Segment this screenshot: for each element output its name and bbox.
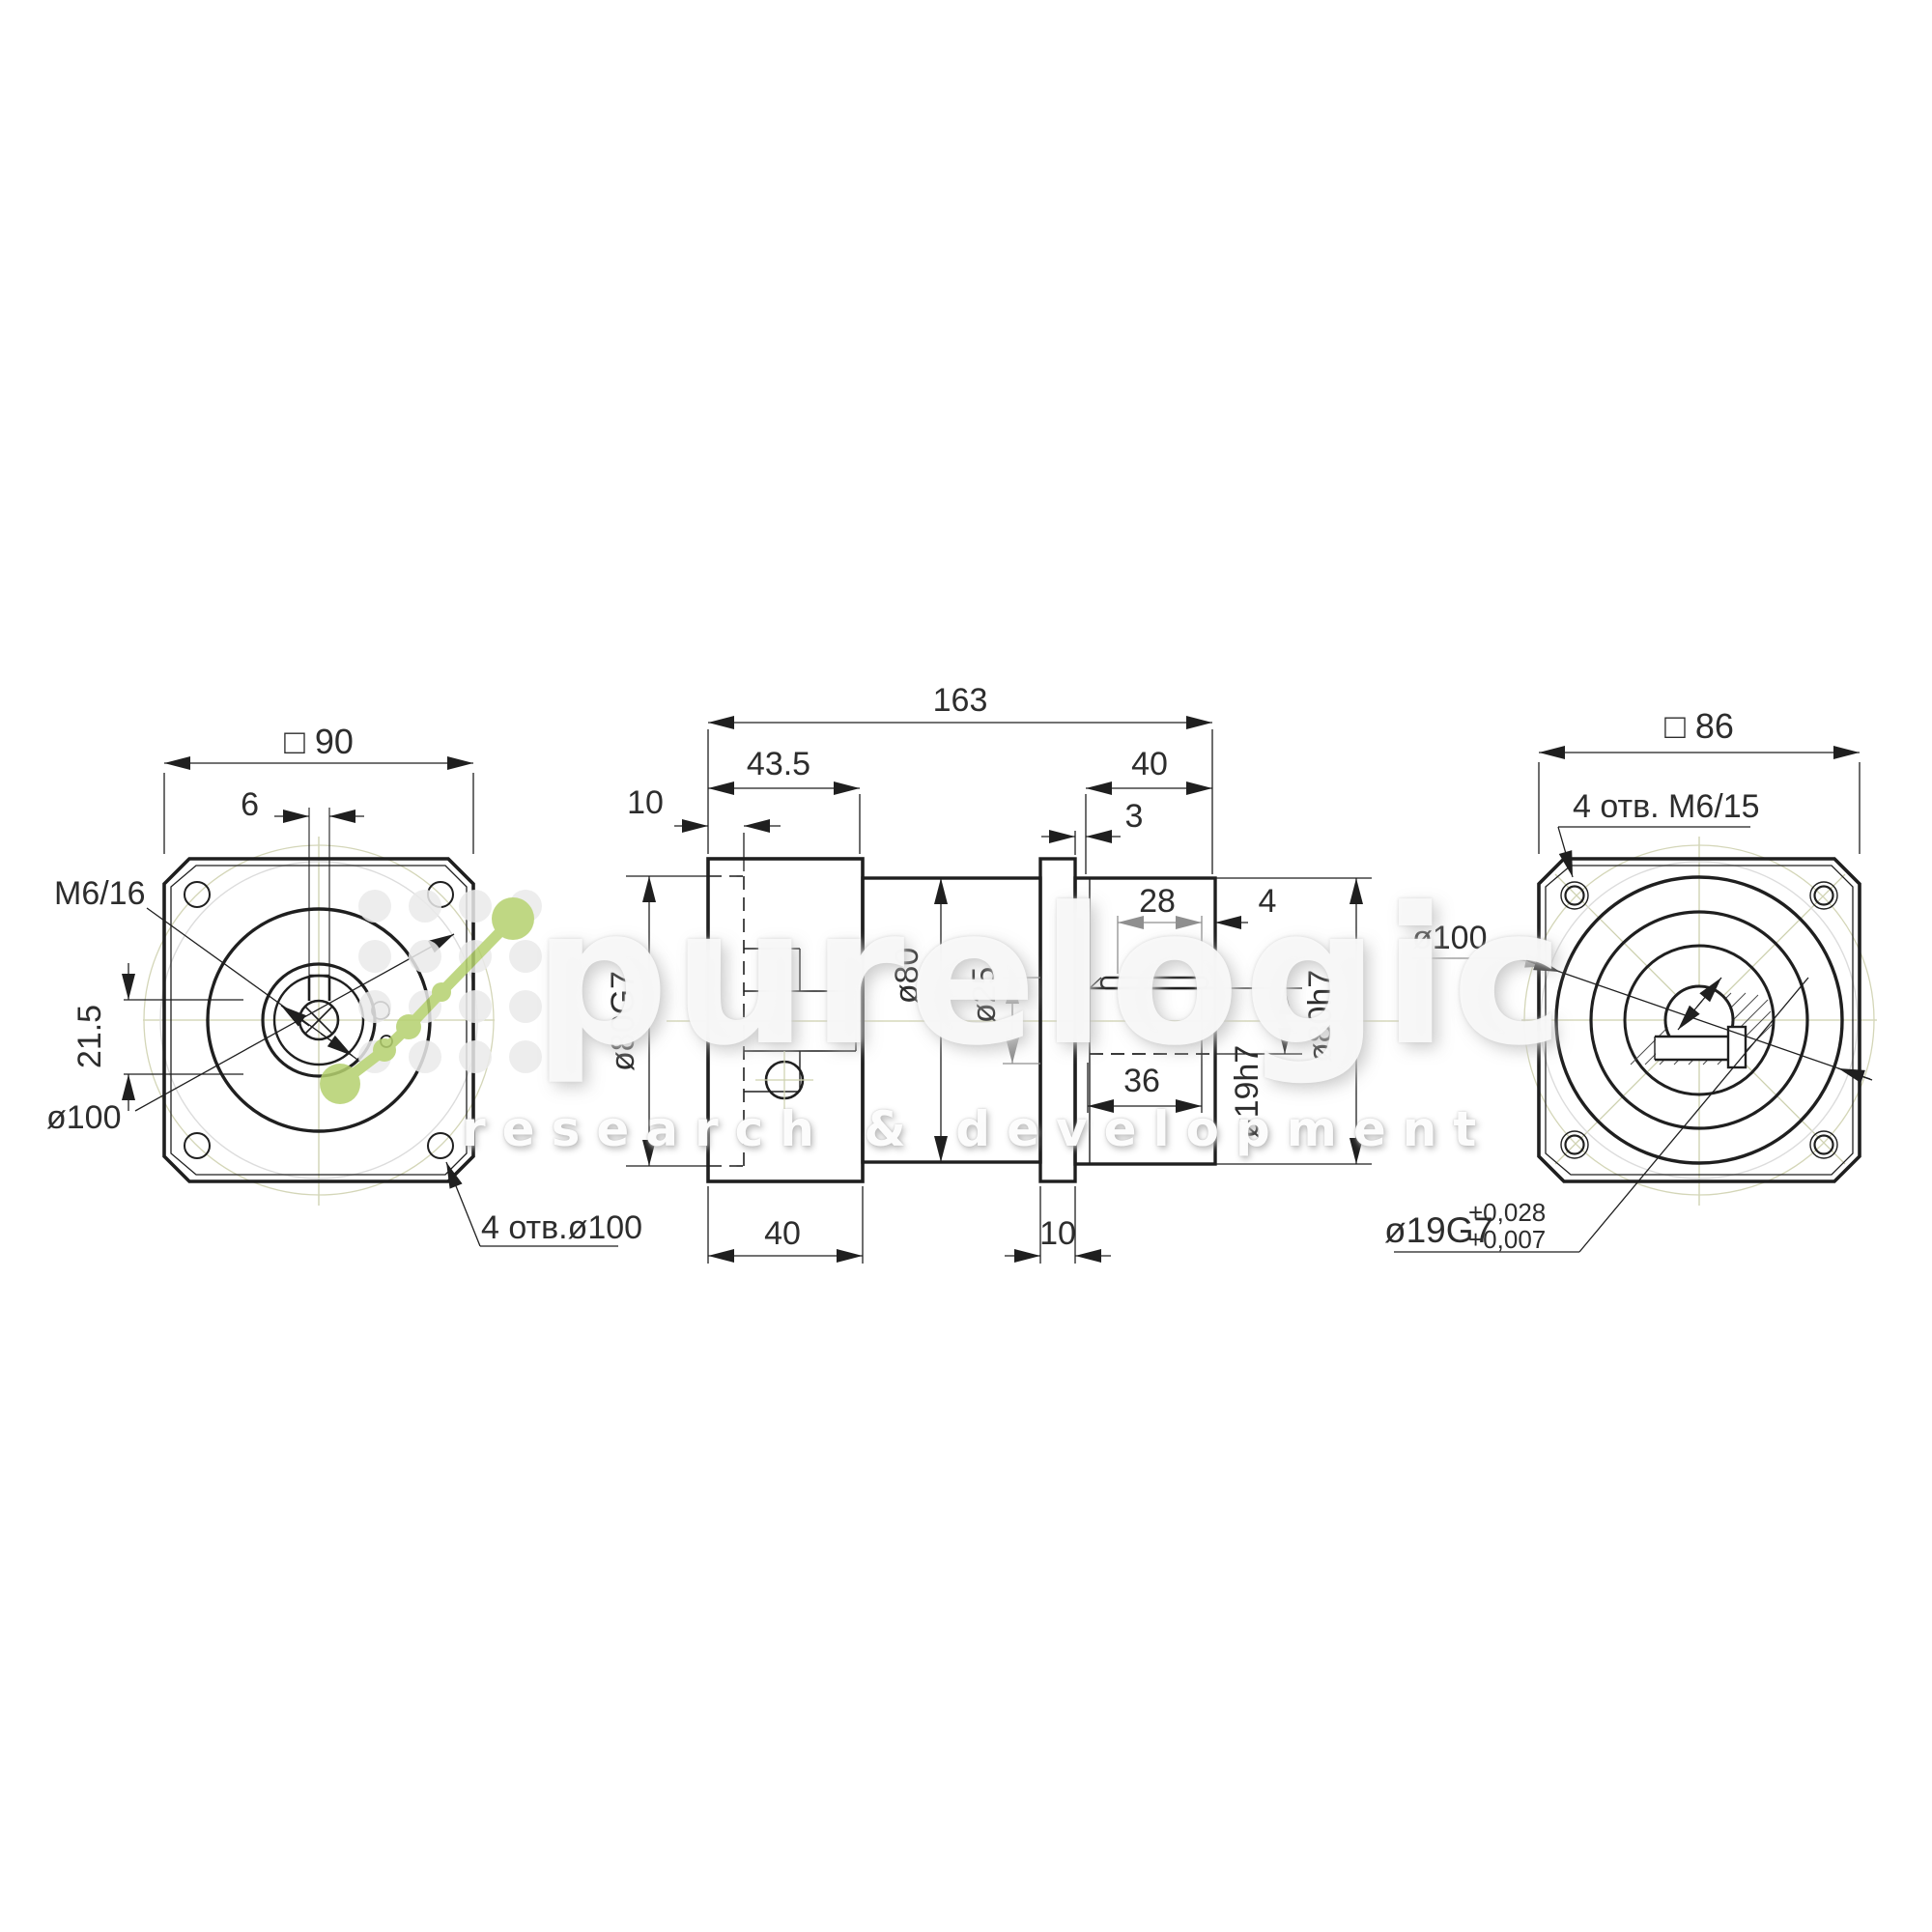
front-label-key-width: 6 bbox=[241, 786, 259, 823]
side-body bbox=[863, 878, 1040, 1162]
rear-leader-holes bbox=[1558, 827, 1750, 877]
side-label-pilot-depth: 10 bbox=[627, 784, 664, 821]
side-label-shaft-length: 36 bbox=[1123, 1063, 1160, 1099]
front-label-key-depth: 21.5 bbox=[71, 1005, 108, 1068]
side-hole-crosshair bbox=[755, 1051, 813, 1109]
front-label-pilot: ø100 bbox=[46, 1099, 122, 1136]
front-label-square90: □ 90 bbox=[284, 722, 354, 761]
side-label-overall: 163 bbox=[933, 682, 988, 719]
side-output-bore bbox=[1090, 978, 1215, 1054]
side-label-body-dia: ø80 bbox=[889, 948, 925, 1005]
front-label-holes: 4 отв.ø100 bbox=[481, 1209, 642, 1246]
side-label-input-length: 43.5 bbox=[747, 746, 810, 782]
side-dim-key-length bbox=[1118, 916, 1202, 974]
side-label-flange-bore: ø25 bbox=[966, 967, 1003, 1024]
side-dim-pilot-depth bbox=[674, 826, 781, 871]
front-flange-view: □ 90 6 M6/16 21.5 ø100 4 отв.ø100 bbox=[46, 722, 642, 1246]
side-section-view: 163 43.5 40 10 3 28 4 ø80G7 ø80 ø25 ø19h… bbox=[605, 682, 1399, 1264]
front-dim-key-depth bbox=[124, 963, 243, 1111]
side-label-output-length: 40 bbox=[1131, 746, 1168, 782]
watermark-logo bbox=[320, 890, 542, 1104]
rear-label-tol-upper: +0,028 bbox=[1468, 1198, 1546, 1227]
side-label-spigot: 3 bbox=[1125, 798, 1144, 835]
side-output-flange-disc bbox=[1040, 859, 1075, 1181]
side-label-hub-length: 40 bbox=[764, 1215, 801, 1252]
rear-label-square86: □ 86 bbox=[1664, 706, 1734, 746]
rear-label-holes: 4 отв. M6/15 bbox=[1573, 788, 1760, 825]
rear-flange-view: □ 86 4 отв. M6/15 ø100 ø19G7 +0,028 +0,0… bbox=[1384, 706, 1877, 1254]
rear-label-pilot: ø100 bbox=[1412, 920, 1488, 956]
front-label-m6: M6/16 bbox=[54, 875, 146, 912]
logo-molecule-chain bbox=[320, 897, 534, 1104]
side-label-output-pilot: ø80h7 bbox=[1302, 970, 1339, 1063]
side-dim-input-length bbox=[708, 788, 860, 854]
side-label-key-length: 28 bbox=[1139, 883, 1176, 920]
side-label-shaft-dia: ø19h7 bbox=[1229, 1045, 1265, 1138]
side-label-flange-thickness: 10 bbox=[1039, 1215, 1076, 1252]
side-label-input-bore: ø80G7 bbox=[605, 971, 641, 1071]
side-input-flange bbox=[708, 859, 863, 1181]
rear-label-tol-lower: +0,007 bbox=[1468, 1225, 1546, 1254]
side-label-key-offset: 4 bbox=[1259, 883, 1277, 920]
side-dim-spigot bbox=[1041, 831, 1121, 855]
gearbox-drawing: □ 90 6 M6/16 21.5 ø100 4 отв.ø100 bbox=[0, 0, 1932, 1932]
drawing-page: □ 90 6 M6/16 21.5 ø100 4 отв.ø100 bbox=[0, 0, 1932, 1932]
side-dim-output-length bbox=[1086, 788, 1212, 874]
